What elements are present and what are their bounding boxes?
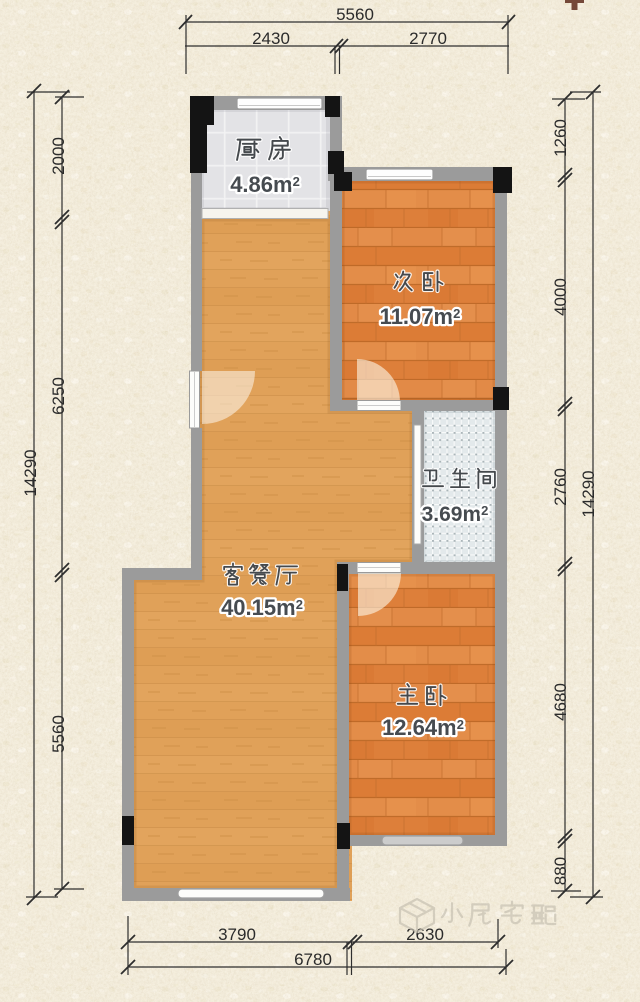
- svg-text:14290: 14290: [579, 470, 598, 517]
- svg-text:3790: 3790: [218, 925, 256, 944]
- svg-text:14290: 14290: [21, 449, 40, 496]
- svg-text:4000: 4000: [551, 278, 570, 316]
- svg-text:3.69m2: 3.69m2: [422, 503, 489, 526]
- svg-text:4680: 4680: [551, 683, 570, 721]
- svg-text:5560: 5560: [336, 5, 374, 24]
- svg-text:2430: 2430: [252, 29, 290, 48]
- svg-text:4.86m2: 4.86m2: [230, 172, 300, 197]
- svg-text:11.07m2: 11.07m2: [380, 304, 461, 329]
- svg-text:880: 880: [551, 857, 570, 885]
- svg-text:2000: 2000: [49, 137, 68, 175]
- svg-text:2770: 2770: [409, 29, 447, 48]
- svg-text:6250: 6250: [49, 377, 68, 415]
- svg-text:40.15m2: 40.15m2: [221, 595, 303, 620]
- svg-text:5560: 5560: [49, 715, 68, 753]
- svg-text:1260: 1260: [551, 119, 570, 157]
- svg-text:6780: 6780: [294, 950, 332, 969]
- svg-text:12.64m2: 12.64m2: [382, 715, 464, 740]
- svg-text:2760: 2760: [551, 468, 570, 506]
